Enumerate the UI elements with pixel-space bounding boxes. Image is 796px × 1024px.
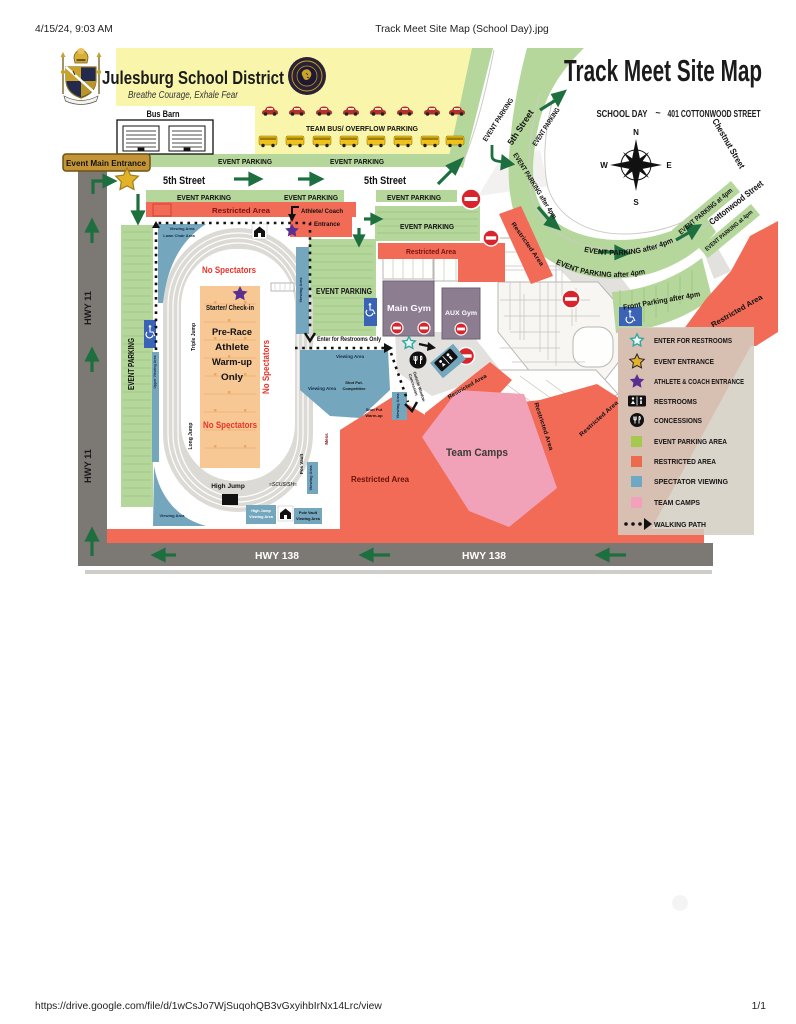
svg-text:Warm-up: Warm-up [212, 357, 253, 367]
svg-text:~: ~ [655, 108, 660, 118]
svg-text:Lawn Chair Area: Lawn Chair Area [163, 233, 195, 238]
svg-text:Track Meet Site Map (School Da: Track Meet Site Map (School Day).jpg [375, 24, 549, 35]
svg-text:No Spectators: No Spectators [261, 340, 271, 394]
svg-text:401 COTTONWOOD STREET: 401 COTTONWOOD STREET [668, 109, 761, 120]
svg-text:1/1: 1/1 [752, 1001, 767, 1012]
svg-text:Viewing Area: Viewing Area [308, 386, 337, 391]
svg-text:No Spectators: No Spectators [202, 265, 256, 275]
svg-text:High Jump: High Jump [211, 483, 245, 490]
svg-text:Upper Viewing Area: Upper Viewing Area [153, 356, 157, 389]
svg-text:Shot Put.: Shot Put. [345, 380, 363, 385]
svg-text:EVENT PARKING: EVENT PARKING [400, 224, 455, 231]
svg-text:No Spectators: No Spectators [203, 420, 257, 430]
svg-text:Bus Barn: Bus Barn [147, 109, 180, 120]
svg-text:EVENT PARKING AREA: EVENT PARKING AREA [654, 439, 727, 446]
svg-text:≈SCUS/SH≈: ≈SCUS/SH≈ [269, 482, 297, 488]
svg-text:High Jump: High Jump [251, 509, 271, 513]
svg-text:AUX Gym: AUX Gym [445, 310, 477, 317]
svg-text:Athlete/ Coach: Athlete/ Coach [301, 209, 343, 215]
svg-text:Viewing Area: Viewing Area [336, 354, 365, 359]
svg-text:EVENT PARKING: EVENT PARKING [177, 195, 232, 202]
svg-text:Pole Vault: Pole Vault [299, 511, 318, 515]
svg-text:N: N [633, 128, 639, 137]
svg-text:Viewing Area: Viewing Area [249, 515, 274, 519]
svg-text:Athlete: Athlete [215, 342, 249, 352]
svg-text:EVENT PARKING: EVENT PARKING [330, 159, 385, 166]
svg-text:Breathe Courage, Exhale Fear: Breathe Courage, Exhale Fear [128, 90, 239, 101]
svg-text:Viewing Area: Viewing Area [160, 513, 186, 518]
svg-text:Restricted Area: Restricted Area [351, 475, 410, 484]
svg-text:Track Meet Site Map: Track Meet Site Map [564, 53, 762, 88]
svg-text:SCHOOL DAY: SCHOOL DAY [597, 109, 648, 120]
svg-text:RESTROOMS: RESTROOMS [654, 399, 697, 406]
svg-text:WALKING PATH: WALKING PATH [654, 522, 706, 529]
svg-text:5th Street: 5th Street [364, 175, 406, 187]
svg-text:EVENT PARKING: EVENT PARKING [284, 195, 339, 202]
svg-text:Long Jump: Long Jump [188, 423, 194, 450]
svg-text:Pre-Race: Pre-Race [212, 327, 252, 337]
svg-text:Warm-up: Warm-up [365, 413, 383, 418]
svg-text:Competitive: Competitive [343, 386, 367, 391]
svg-text:RESTRICTED AREA: RESTRICTED AREA [654, 459, 716, 466]
svg-text:4/15/24, 9:03 AM: 4/15/24, 9:03 AM [35, 24, 113, 35]
svg-text:HWY 11: HWY 11 [83, 449, 93, 483]
svg-text:HWY 11: HWY 11 [83, 291, 93, 325]
svg-text:HWY 138: HWY 138 [462, 551, 506, 562]
svg-text:EVENT PARKING: EVENT PARKING [218, 159, 273, 166]
svg-text:E: E [666, 161, 672, 170]
svg-text:https://drive.google.com/file/: https://drive.google.com/file/d/1wCsJo7W… [35, 1001, 382, 1012]
svg-text:HWY 138: HWY 138 [255, 551, 299, 562]
svg-text:Mess: Mess [324, 433, 329, 445]
svg-text:Main Gym: Main Gym [387, 304, 431, 313]
svg-text:EVENT PARKING: EVENT PARKING [387, 195, 442, 202]
svg-text:Viewing Area: Viewing Area [296, 517, 321, 521]
svg-text:Pos Vault: Pos Vault [299, 453, 304, 474]
svg-text:EVENT PARKING: EVENT PARKING [127, 338, 136, 390]
svg-text:Only: Only [221, 372, 243, 382]
svg-text:Enter for Restrooms Only: Enter for Restrooms Only [317, 336, 381, 343]
svg-text:Triple Jump: Triple Jump [191, 323, 197, 351]
svg-text:EVENT ENTRANCE: EVENT ENTRANCE [654, 359, 714, 366]
svg-text:Shot Put: Shot Put [366, 407, 383, 412]
svg-text:Viewing Area: Viewing Area [395, 393, 400, 419]
svg-text:Restricted Area: Restricted Area [406, 249, 456, 256]
svg-text:SPECTATOR VIEWING: SPECTATOR VIEWING [654, 479, 729, 486]
svg-text:ENTER FOR RESTROOMS: ENTER FOR RESTROOMS [654, 338, 732, 345]
svg-text:Viewing Area: Viewing Area [170, 226, 196, 231]
svg-text:Viewing Area: Viewing Area [308, 465, 313, 491]
svg-text:5th Street: 5th Street [163, 175, 205, 187]
svg-text:EVENT PARKING: EVENT PARKING [316, 287, 372, 296]
svg-text:Team Camps: Team Camps [446, 447, 508, 459]
svg-text:ATHLETE & COACH ENTRANCE: ATHLETE & COACH ENTRANCE [654, 379, 744, 386]
svg-text:TEAM CAMPS: TEAM CAMPS [654, 500, 700, 507]
svg-text:Starter/ Check-in: Starter/ Check-in [206, 305, 254, 312]
svg-text:Event Main Entrance: Event Main Entrance [66, 158, 146, 168]
svg-text:Entrance: Entrance [314, 222, 341, 228]
svg-text:CONCESSIONS: CONCESSIONS [654, 418, 702, 425]
svg-text:TEAM BUS/ OVERFLOW PARKING: TEAM BUS/ OVERFLOW PARKING [306, 124, 418, 133]
svg-text:W: W [600, 161, 608, 170]
svg-text:S: S [633, 198, 639, 207]
svg-text:Julesburg School District: Julesburg School District [102, 68, 284, 88]
svg-text:Restricted Area: Restricted Area [212, 208, 270, 215]
svg-text:Viewing Area: Viewing Area [298, 277, 303, 303]
